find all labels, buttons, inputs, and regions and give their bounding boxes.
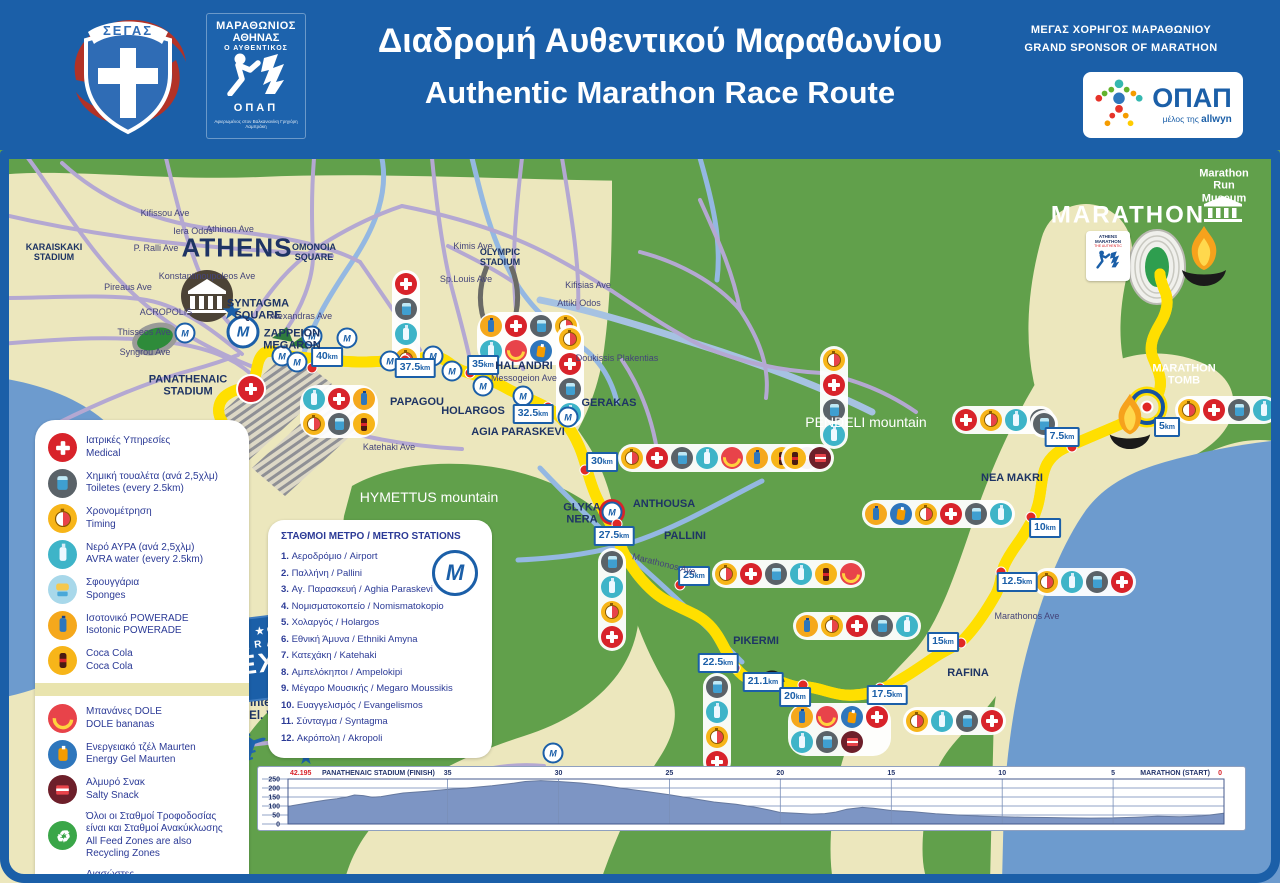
toilet-icon — [671, 447, 693, 469]
feed-zone-cluster — [703, 673, 731, 776]
map-label: OLYMPIC STADIUM — [480, 247, 520, 267]
legend-item-label: Ιατρικές ΥπηρεσίεςMedical — [86, 435, 170, 460]
map-label: P. Ralli Ave — [134, 243, 179, 253]
feed-zone-cluster — [712, 560, 865, 588]
metro-station: 11. Σύνταγμα / Syntagma — [281, 714, 479, 731]
legend-item: Coca ColaCoca Cola — [35, 646, 249, 675]
legend-item-label: Coca ColaCoca Cola — [86, 648, 133, 673]
km-marker: 37.5km — [395, 358, 436, 378]
water-icon — [896, 615, 918, 637]
map-label: PAPAGOU — [390, 396, 444, 408]
map-label: Alexandras Ave — [270, 311, 332, 321]
legend-divider — [35, 683, 249, 696]
map-label: ZAPPEION MEGARON — [263, 328, 320, 353]
powerade-icon — [480, 315, 502, 337]
water-icon — [601, 576, 623, 598]
opap-subtitle: μέλος της allwyn — [1152, 114, 1232, 125]
map-label: PANATHENAIC STADIUM — [149, 374, 227, 399]
toilet-icon — [956, 710, 978, 732]
sponsor-block: ΜΕΓΑΣ ΧΟΡΗΓΟΣ ΜΑΡΑΘΩΝΙΟΥ GRAND SPONSOR O… — [996, 24, 1246, 54]
title-greek: Διαδρομή Αυθεντικού Μαραθωνίου — [340, 22, 980, 61]
gel-icon — [48, 740, 77, 769]
map-label: Sp.Louis Ave — [440, 274, 492, 284]
medical-icon — [866, 706, 888, 728]
water-icon — [790, 563, 812, 585]
banana-icon — [48, 704, 77, 733]
map-label: Katehaki Ave — [363, 442, 415, 452]
feed-zone-cluster — [300, 385, 378, 438]
gel-icon — [890, 503, 912, 525]
legend-item-label: Μπανάνες DOLEDOLE bananas — [86, 706, 162, 731]
km-marker: 17.5km — [867, 685, 908, 705]
map-label: Marathon Run Museum — [1196, 168, 1252, 205]
coke-icon — [353, 413, 375, 435]
legend-item: Μπανάνες DOLEDOLE bananas — [35, 704, 249, 733]
water-icon — [990, 503, 1012, 525]
svg-text:5: 5 — [1111, 770, 1115, 777]
feed-zone-cluster — [788, 703, 891, 756]
legend-item: Ιατρικές ΥπηρεσίεςMedical — [35, 433, 249, 462]
legend-item-label: ΧρονομέτρησηTiming — [86, 506, 152, 531]
map-label: HYMETTUS mountain — [360, 490, 498, 506]
opap-logo: ΟΠΑΠ μέλος της allwyn — [1083, 72, 1243, 138]
map-label: Doukissis Plakentias — [576, 353, 659, 363]
svg-text:250: 250 — [268, 777, 280, 784]
svg-text:0: 0 — [276, 822, 280, 829]
svg-text:35: 35 — [444, 770, 452, 777]
metro-station-icon: M — [442, 361, 463, 382]
km-marker: 27.5km — [594, 526, 635, 546]
gel-icon — [841, 706, 863, 728]
map-label: Kifissou Ave — [141, 208, 190, 218]
sponsor-line-greek: ΜΕΓΑΣ ΧΟΡΗΓΟΣ ΜΑΡΑΘΩΝΙΟΥ — [996, 24, 1246, 36]
km-marker: 20km — [779, 687, 811, 707]
legend-items: Ιατρικές ΥπηρεσίεςMedicalΧημική τουαλέτα… — [35, 433, 249, 883]
elevation-profile: 250200150100500353025201510542.195PANATH… — [257, 766, 1246, 831]
map-label: GERAKAS — [581, 397, 636, 409]
marathon-logo-line1: ΜΑΡΑΘΩΝΙΟΣ — [207, 20, 305, 32]
water-icon — [303, 388, 325, 410]
legend-item-label: Χημική τουαλέτα (ανά 2,5χλμ)Toiletes (ev… — [86, 471, 218, 496]
legend-item-label: ΣφουγγάριαSponges — [86, 577, 139, 602]
legend-item: Ισοτονικό POWERADEIsotonic POWERADE — [35, 611, 249, 640]
map-label: HALANDRI — [495, 360, 552, 372]
water-icon — [1005, 409, 1027, 431]
marathon-logo-line3: Ο ΑΥΘΕΝΤΙΚΟΣ — [207, 45, 305, 52]
water-icon — [48, 540, 77, 569]
legend-item-label: Όλοι οι Σταθμοί Τροφοδοσίας είναι και Στ… — [86, 811, 236, 861]
timing-icon — [48, 504, 77, 533]
marathon-logo-caption: Αφιερωμένος στον Βαλκανιονίκη Γρηγόρη Λα… — [207, 119, 305, 129]
map-label: MARATHON TOMB — [1136, 363, 1232, 388]
toilet-icon — [328, 413, 350, 435]
timing-icon — [1036, 571, 1058, 593]
medical-icon — [48, 433, 77, 462]
map-label: KARAISKAKI STADIUM — [26, 242, 83, 262]
km-marker: 7.5km — [1045, 427, 1080, 447]
metro-station-icon: M — [558, 407, 579, 428]
svg-text:50: 50 — [272, 813, 280, 820]
salty-icon — [841, 731, 863, 753]
rescue-icon — [48, 867, 77, 883]
medical-icon — [823, 374, 845, 396]
opap-wordmark: ΟΠΑΠ μέλος της allwyn — [1152, 85, 1232, 125]
metro-station: 6. Εθνική Άμυνα / Ethniki Amyna — [281, 632, 479, 649]
water-icon — [706, 701, 728, 723]
recycle-icon: ♻ — [48, 821, 77, 850]
svg-text:15: 15 — [887, 770, 895, 777]
map-label: Athinon Ave — [206, 224, 254, 234]
metro-station-icon: M — [337, 328, 358, 349]
timing-icon — [1178, 399, 1200, 421]
toilet-icon — [601, 551, 623, 573]
salty-icon — [48, 775, 77, 804]
svg-text:200: 200 — [268, 786, 280, 793]
legend-item: ΧρονομέτρησηTiming — [35, 504, 249, 533]
map-label: RAFINA — [947, 667, 989, 679]
banana-icon — [840, 563, 862, 585]
map-label: PENDELI mountain — [805, 415, 926, 431]
toilet-icon — [530, 315, 552, 337]
timing-icon — [303, 413, 325, 435]
map-label: ANTHOUSA — [633, 498, 695, 510]
toilet-icon — [559, 378, 581, 400]
toilet-icon — [395, 298, 417, 320]
timing-icon — [621, 447, 643, 469]
header: ΣΕΓΑΣ ΜΑΡΑΘΩΝΙΟΣ ΑΘΗΝΑΣ Ο ΑΥΘΕΝΤΙΚΟΣ ΟΠΑ… — [0, 0, 1280, 150]
salty-icon — [809, 447, 831, 469]
toilet-icon — [1228, 399, 1250, 421]
metro-station: 12. Ακρόπολη / Akropoli — [281, 731, 479, 748]
marathon-athens-logo: ΜΑΡΑΘΩΝΙΟΣ ΑΘΗΝΑΣ Ο ΑΥΘΕΝΤΙΚΟΣ ΟΠΑΠ Αφιε… — [206, 13, 306, 139]
water-icon — [395, 323, 417, 345]
medical-icon — [646, 447, 668, 469]
medical-icon — [1203, 399, 1225, 421]
poster: ★ ✈ ★ ATHENS MARATHON THE AUTHENTIC ★ ΟΠ… — [0, 0, 1280, 883]
toilet-icon — [706, 676, 728, 698]
legend-item: Νερό ΑΥΡΑ (ανά 2,5χλμ)AVRA water (every … — [35, 540, 249, 569]
elevation-chart: 250200150100500353025201510542.195PANATH… — [258, 767, 1243, 828]
feed-zone-cluster — [598, 548, 626, 651]
map-label: HOLARGOS — [441, 405, 505, 417]
feed-zone-cluster — [1033, 568, 1136, 596]
coke-icon — [815, 563, 837, 585]
svg-text:100: 100 — [268, 804, 280, 811]
metro-station-icon: M — [175, 323, 196, 344]
medical-icon — [1111, 571, 1133, 593]
legend-item: ♻Όλοι οι Σταθμοί Τροφοδοσίας είναι και Σ… — [35, 811, 249, 861]
legend-item-label: Ισοτονικό POWERADEIsotonic POWERADE — [86, 613, 189, 638]
map-label: Attiki Odos — [557, 298, 601, 308]
feed-zone-cluster — [1175, 396, 1278, 424]
timing-icon — [706, 726, 728, 748]
map-label: PIKERMI — [733, 635, 779, 647]
medical-icon — [395, 273, 417, 295]
sponsor-line-english: GRAND SPONSOR OF MARATHON — [996, 42, 1246, 54]
banana-icon — [505, 340, 527, 362]
map-label: ATHENS — [182, 233, 293, 262]
map-label: Marathonos Ave — [631, 551, 696, 576]
legend-panel: Ιατρικές ΥπηρεσίεςMedicalΧημική τουαλέτα… — [35, 420, 249, 883]
timing-icon — [821, 615, 843, 637]
title-english: Authentic Marathon Race Route — [340, 75, 980, 111]
map-label: Kifisias Ave — [565, 280, 611, 290]
timing-icon — [601, 601, 623, 623]
km-marker: 10km — [1029, 518, 1061, 538]
km-marker: 15km — [927, 632, 959, 652]
opap-figure-icon — [1094, 78, 1144, 132]
svg-text:10: 10 — [998, 770, 1006, 777]
water-icon — [1253, 399, 1275, 421]
map-label: Pireaus Ave — [104, 282, 152, 292]
km-marker: 21.1km — [743, 672, 784, 692]
water-icon — [791, 731, 813, 753]
metro-stations-panel: ΣΤΑΘΜΟΙ ΜΕΤΡΟ / METRO STATIONS M 1. Αερο… — [268, 520, 492, 758]
map-label: Marathonos Ave — [995, 611, 1060, 621]
medical-icon — [740, 563, 762, 585]
svg-text:30: 30 — [555, 770, 563, 777]
metro-station: 7. Κατεχάκη / Katehaki — [281, 648, 479, 665]
timing-icon — [715, 563, 737, 585]
map-label: Messogeion Ave — [491, 373, 557, 383]
timing-icon — [915, 503, 937, 525]
banana-icon — [816, 706, 838, 728]
medical-icon — [955, 409, 977, 431]
feed-zone-cluster — [781, 444, 834, 472]
svg-text:20: 20 — [776, 770, 784, 777]
svg-text:150: 150 — [268, 795, 280, 802]
metro-logo-icon: M — [432, 550, 478, 596]
coke-icon — [784, 447, 806, 469]
gel-icon — [530, 340, 552, 362]
marathon-logo-line2: ΑΘΗΝΑΣ — [207, 32, 305, 44]
segas-label: ΣΕΓΑΣ — [103, 23, 153, 38]
metro-station: 4. Νομισματοκοπείο / Nomismatokopio — [281, 599, 479, 616]
poster-title: Διαδρομή Αυθεντικού Μαραθωνίου Authentic… — [340, 0, 980, 111]
map-label: Thisseos Ave — [117, 327, 170, 337]
toilet-icon — [1086, 571, 1108, 593]
metro-station: 10. Ευαγγελισμός / Evangelismos — [281, 698, 479, 715]
athens-marathon-logo: ATHENS MARATHON THE AUTHENTIC — [1086, 231, 1130, 281]
map-label: NEA MAKRI — [981, 472, 1043, 484]
km-marker: 30km — [586, 452, 618, 472]
timing-icon — [823, 349, 845, 371]
km-marker: 32.5km — [513, 404, 554, 424]
svg-text:42.195: 42.195 — [290, 770, 312, 777]
legend-item-label: ΔιασώστεςRescue Team — [86, 869, 147, 883]
metro-station-icon: M — [287, 352, 308, 373]
timing-icon — [980, 409, 1002, 431]
water-icon — [1061, 571, 1083, 593]
powerade-icon — [48, 611, 77, 640]
metro-panel-title: ΣΤΑΘΜΟΙ ΜΕΤΡΟ / METRO STATIONS — [281, 531, 479, 542]
map-label: GLYKA NERA — [563, 502, 601, 527]
metro-station-icon: M — [543, 743, 564, 764]
runner-icon — [225, 52, 287, 96]
svg-text:25: 25 — [666, 770, 674, 777]
km-marker: 5km — [1154, 417, 1180, 437]
legend-item: Χημική τουαλέτα (ανά 2,5χλμ)Toiletes (ev… — [35, 469, 249, 498]
powerade-icon — [791, 706, 813, 728]
toilet-icon — [871, 615, 893, 637]
legend-item: Αλμυρό ΣνακSalty Snack — [35, 775, 249, 804]
legend-item-label: Νερό ΑΥΡΑ (ανά 2,5χλμ)AVRA water (every … — [86, 542, 203, 567]
map-label: Konstantinoupoleos Ave — [159, 271, 255, 281]
powerade-icon — [353, 388, 375, 410]
svg-text:PANATHENAIC STADIUM (FINISH): PANATHENAIC STADIUM (FINISH) — [322, 770, 435, 777]
medical-icon — [505, 315, 527, 337]
toilet-icon — [816, 731, 838, 753]
timing-icon — [559, 328, 581, 350]
map-label: AGIA PARASKEVI — [471, 426, 565, 438]
feed-zone-cluster — [820, 346, 848, 449]
legend-item: ΣφουγγάριαSponges — [35, 575, 249, 604]
legend-item: Ενεργειακό τζέλ MaurtenEnergy Gel Maurte… — [35, 740, 249, 769]
toilet-icon — [48, 469, 77, 498]
map-label: OMONOIA SQUARE — [292, 242, 336, 262]
water-icon — [931, 710, 953, 732]
feed-zone-cluster — [903, 707, 1006, 735]
toilet-icon — [965, 503, 987, 525]
map-label: ACROPOLIS — [140, 307, 193, 317]
coke-icon — [48, 646, 77, 675]
legend-item-label: Ενεργειακό τζέλ MaurtenEnergy Gel Maurte… — [86, 742, 196, 767]
km-marker: 22.5km — [698, 653, 739, 673]
medical-icon — [981, 710, 1003, 732]
medical-icon — [236, 374, 266, 404]
runner-icon — [1096, 249, 1120, 269]
banana-icon — [721, 447, 743, 469]
toilet-icon — [765, 563, 787, 585]
medical-icon — [846, 615, 868, 637]
powerade-icon — [865, 503, 887, 525]
km-marker: 12.5km — [997, 572, 1038, 592]
legend-item: ΔιασώστεςRescue Team — [35, 867, 249, 883]
sponge-icon — [48, 575, 77, 604]
svg-text:0: 0 — [1218, 770, 1222, 777]
marathon-logo-opap: ΟΠΑΠ — [207, 102, 305, 114]
legend-item-label: Αλμυρό ΣνακSalty Snack — [86, 777, 145, 802]
medical-icon — [940, 503, 962, 525]
medical-icon — [601, 626, 623, 648]
feed-zone-cluster — [793, 612, 921, 640]
powerade-icon — [746, 447, 768, 469]
feed-zone-cluster — [862, 500, 1015, 528]
feed-zone-cluster — [236, 374, 266, 404]
opap-name: ΟΠΑΠ — [1152, 85, 1232, 112]
metro-station: 8. Αμπελόκηποι / Ampelokipi — [281, 665, 479, 682]
map-label: MARATHON — [1051, 203, 1205, 230]
water-icon — [696, 447, 718, 469]
metro-station: 9. Μέγαρο Μουσικής / Megaro Moussikis — [281, 681, 479, 698]
map-label: Syngrou Ave — [120, 347, 171, 357]
medical-icon — [328, 388, 350, 410]
svg-text:MARATHON (START): MARATHON (START) — [1140, 770, 1210, 777]
segas-logo: ΣΕΓΑΣ — [58, 8, 198, 140]
map-label: PALLINI — [664, 530, 706, 542]
powerade-icon — [796, 615, 818, 637]
metro-station: 5. Χολαργός / Holargos — [281, 615, 479, 632]
timing-icon — [906, 710, 928, 732]
